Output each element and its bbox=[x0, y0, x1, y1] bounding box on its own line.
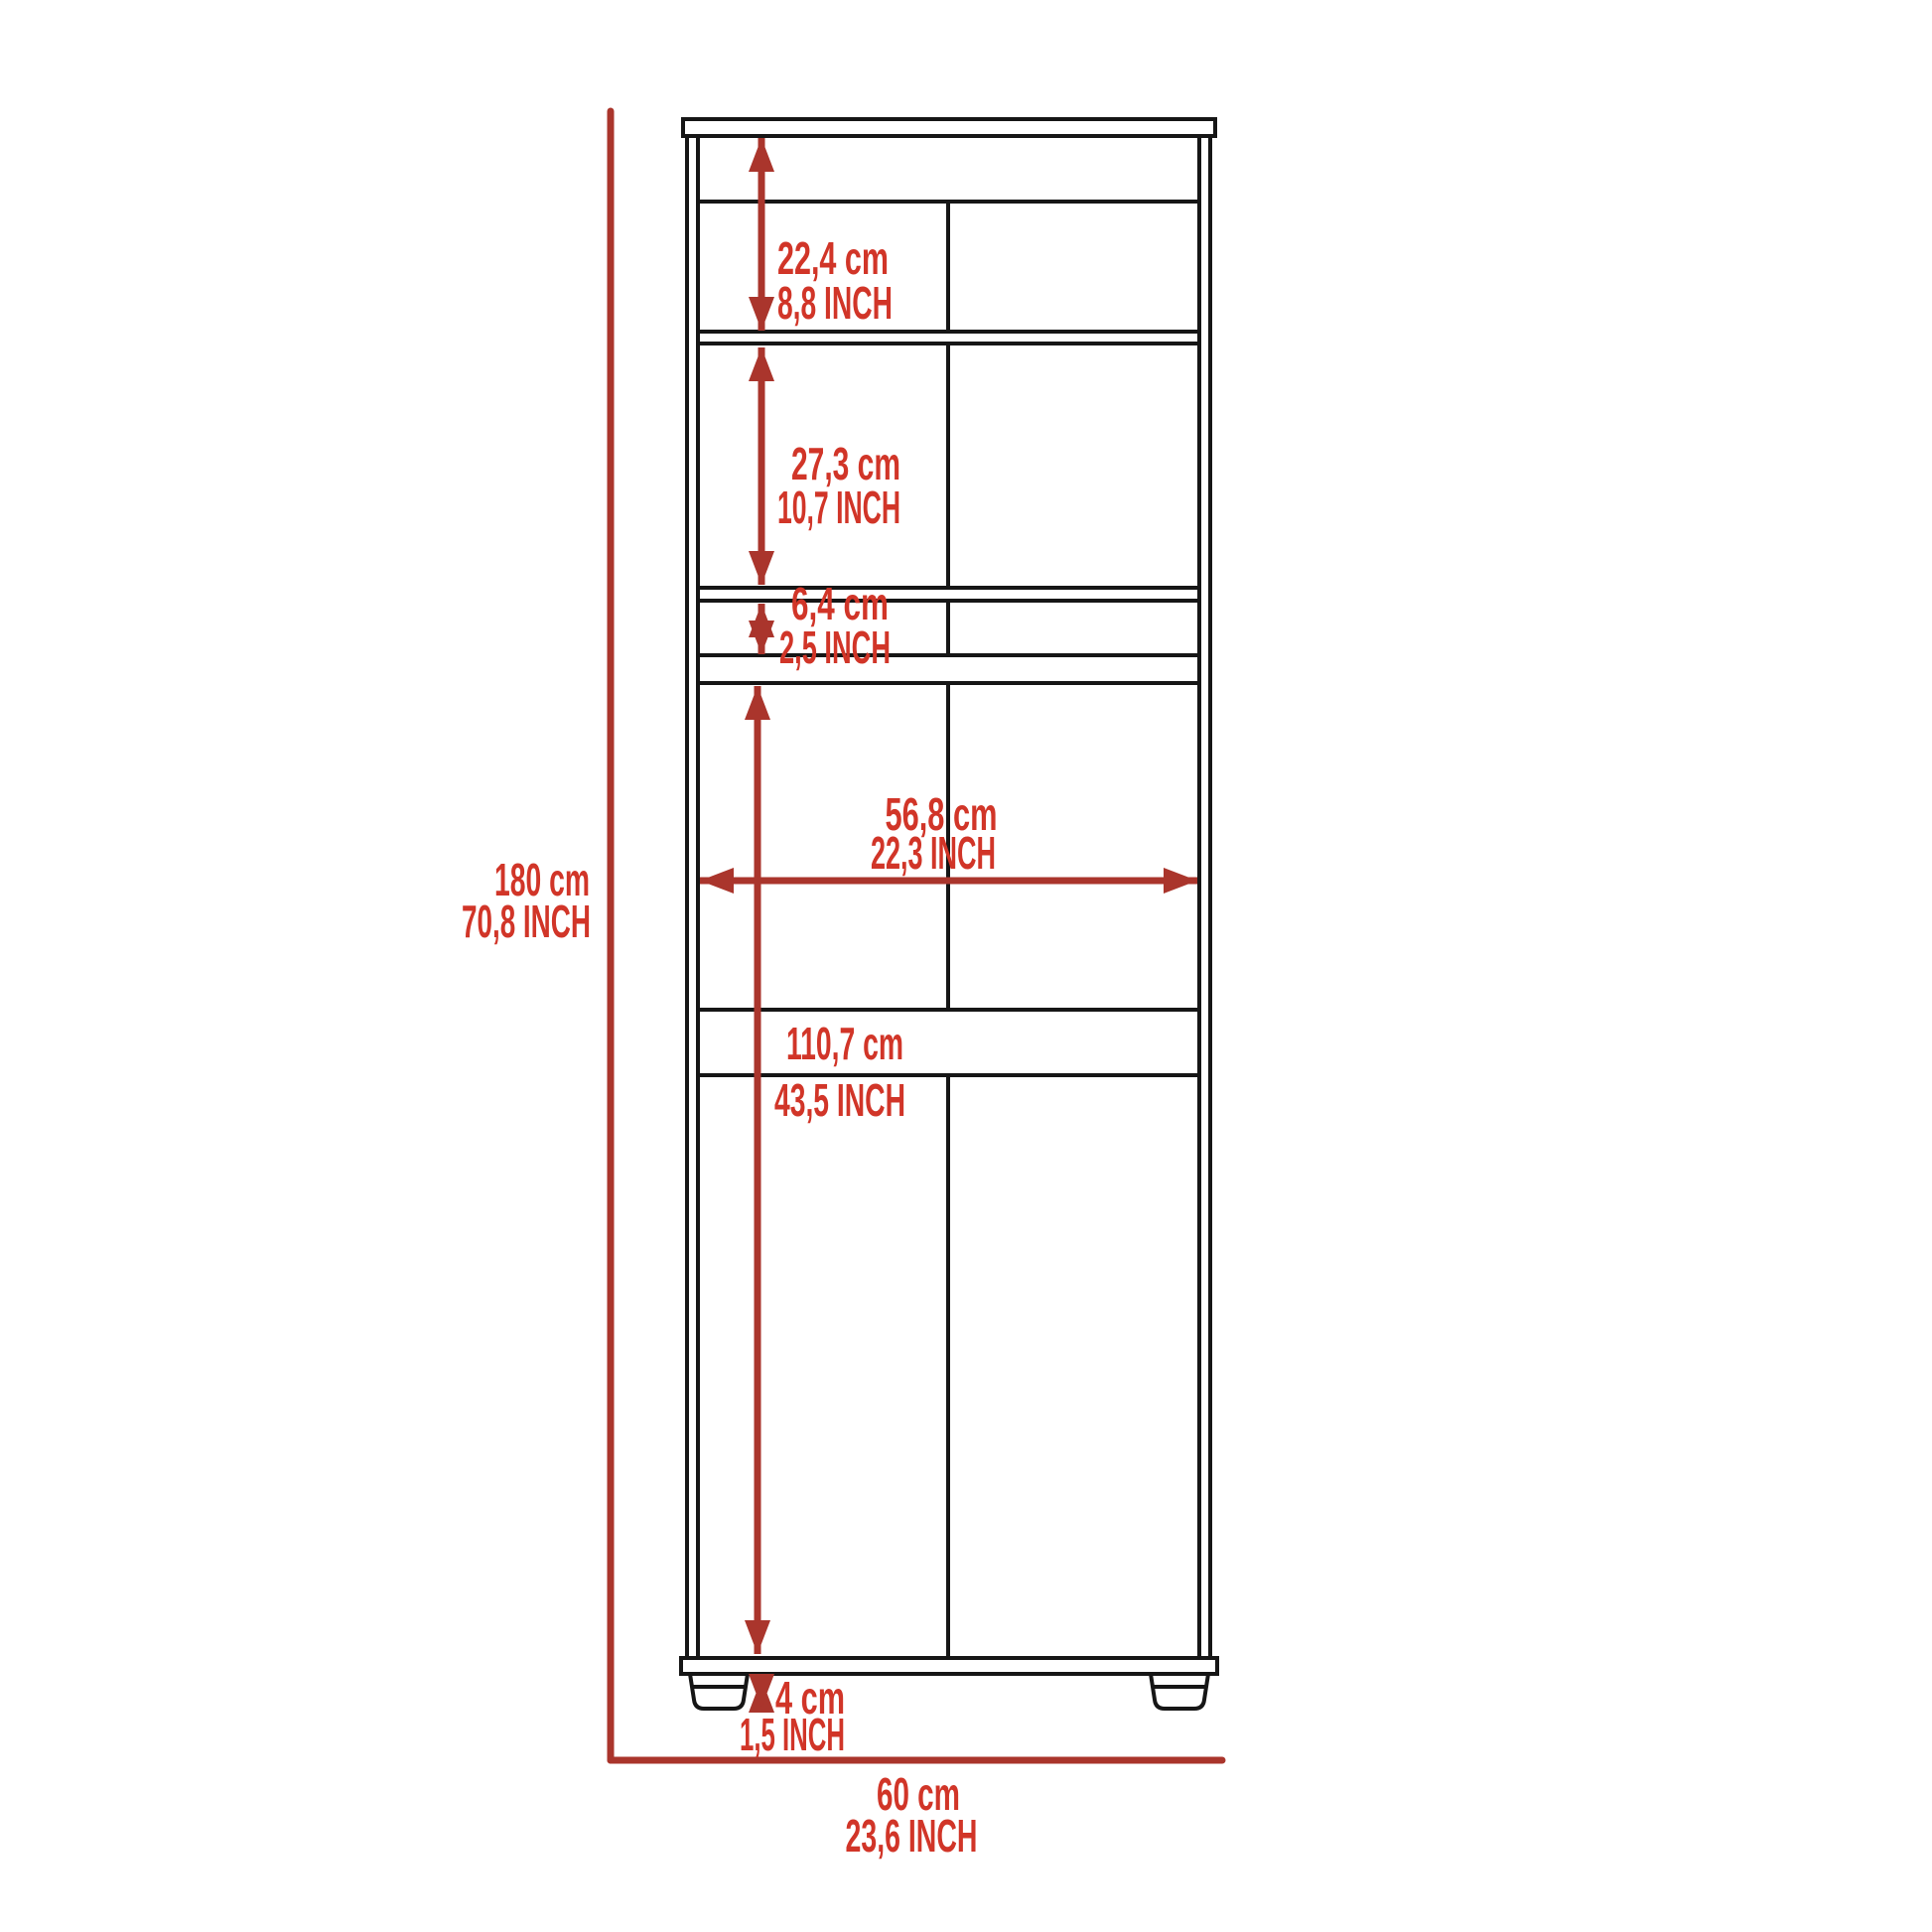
interior-width-inch-label: 22,3 INCH bbox=[871, 827, 996, 879]
cabinet-bottom-board bbox=[681, 1658, 1217, 1674]
cabinet-feet bbox=[690, 1674, 1208, 1709]
furniture-dimension-diagram: 22,4 cm 8,8 INCH 27,3 cm 10,7 INCH 6,4 c… bbox=[0, 0, 1932, 1932]
slot-height-inch-label: 2,5 INCH bbox=[779, 621, 891, 673]
total-height-inch-label: 70,8 INCH bbox=[462, 896, 591, 947]
dimension-diagram-canvas: 22,4 cm 8,8 INCH 27,3 cm 10,7 INCH 6,4 c… bbox=[0, 0, 1932, 1932]
dimension-lines bbox=[611, 111, 1222, 1760]
dimension-labels: 22,4 cm 8,8 INCH 27,3 cm 10,7 INCH 6,4 c… bbox=[462, 232, 998, 1862]
left-foot bbox=[690, 1674, 748, 1709]
lower-cabinet-height-inch-label: 43,5 INCH bbox=[774, 1074, 905, 1126]
top-shelf-height-inch-label: 8,8 INCH bbox=[777, 277, 893, 329]
foot-height-inch-label: 1,5 INCH bbox=[740, 1709, 845, 1760]
middle-shelf-height-inch-label: 10,7 INCH bbox=[777, 482, 900, 533]
lower-cabinet-height-cm-label: 110,7 cm bbox=[786, 1018, 903, 1069]
total-width-inch-label: 23,6 INCH bbox=[846, 1810, 978, 1862]
right-foot bbox=[1151, 1674, 1208, 1709]
cabinet-top-board bbox=[683, 119, 1215, 136]
